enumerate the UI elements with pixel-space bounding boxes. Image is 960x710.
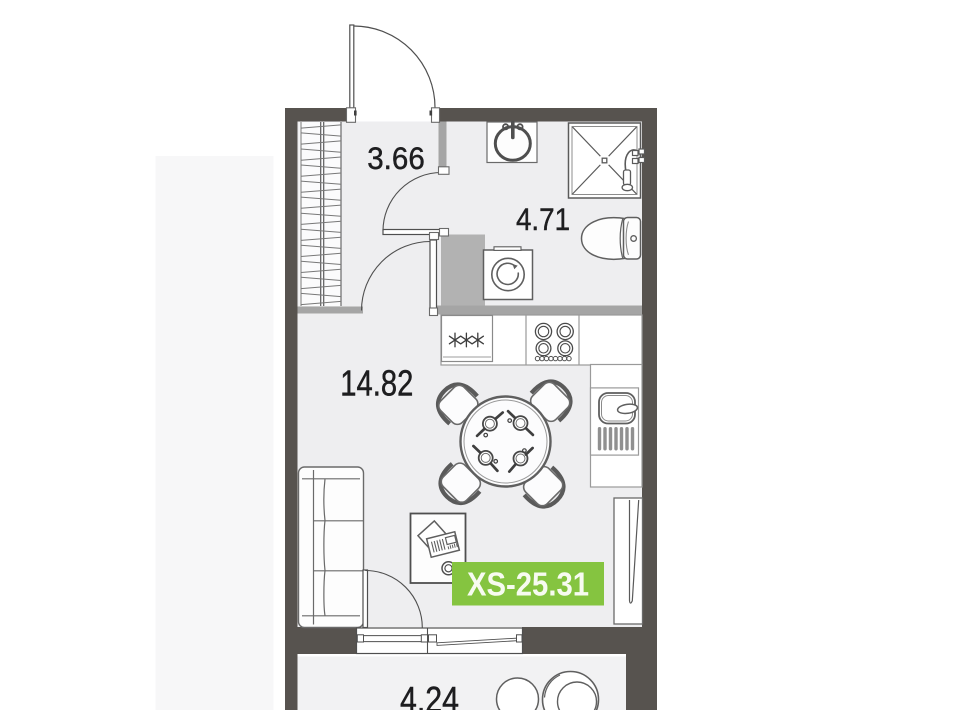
svg-text:XS-25.31: XS-25.31 [467, 566, 589, 603]
svg-text:3.66: 3.66 [367, 140, 425, 176]
svg-text:4.71: 4.71 [516, 201, 570, 237]
svg-text:14.82: 14.82 [340, 363, 413, 404]
svg-text:4.24: 4.24 [400, 679, 459, 710]
